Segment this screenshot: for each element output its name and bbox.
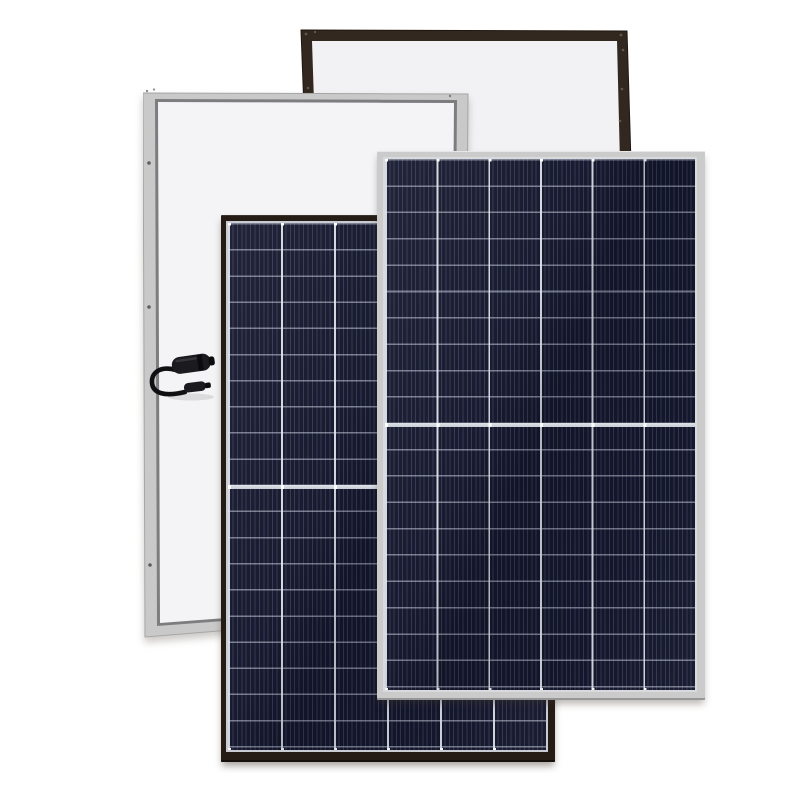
- half-cell-center-divider: [385, 423, 695, 427]
- panel-front-silver-frame: [377, 151, 705, 700]
- solar-cell-grid: [383, 157, 697, 692]
- solar-panels-product-photo: [0, 0, 797, 798]
